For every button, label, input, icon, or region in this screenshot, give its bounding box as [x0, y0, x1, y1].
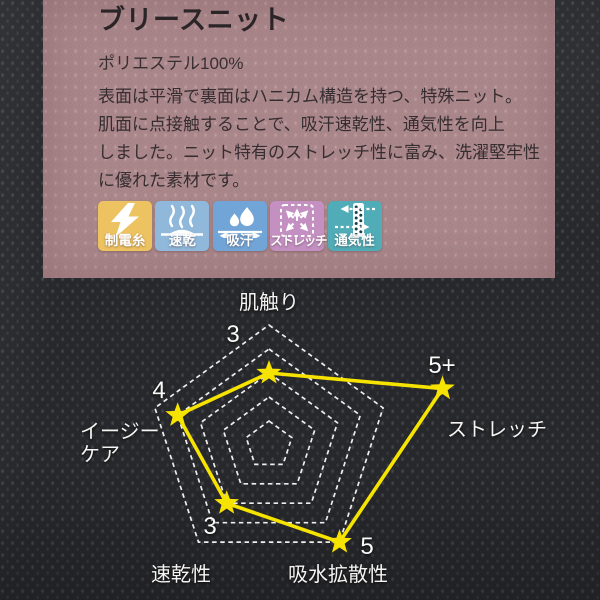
value-label-kyusui-kakusan: 5: [360, 533, 373, 561]
axis-label-easy-care: イージー ケア: [80, 421, 160, 467]
value-label-easy-care: 4: [152, 377, 165, 405]
value-label-stretch: 5+: [428, 352, 455, 380]
radar-chart: [0, 0, 600, 600]
value-label-hadazawari: 3: [226, 321, 239, 349]
axis-label-hadazawari: 肌触り: [239, 292, 299, 315]
value-label-sokkansei: 3: [203, 513, 216, 541]
axis-label-sokkansei: 速乾性: [151, 564, 211, 587]
axis-label-stretch: ストレッチ: [447, 419, 547, 442]
axis-label-kyusui-kakusan: 吸水拡散性: [288, 564, 388, 587]
